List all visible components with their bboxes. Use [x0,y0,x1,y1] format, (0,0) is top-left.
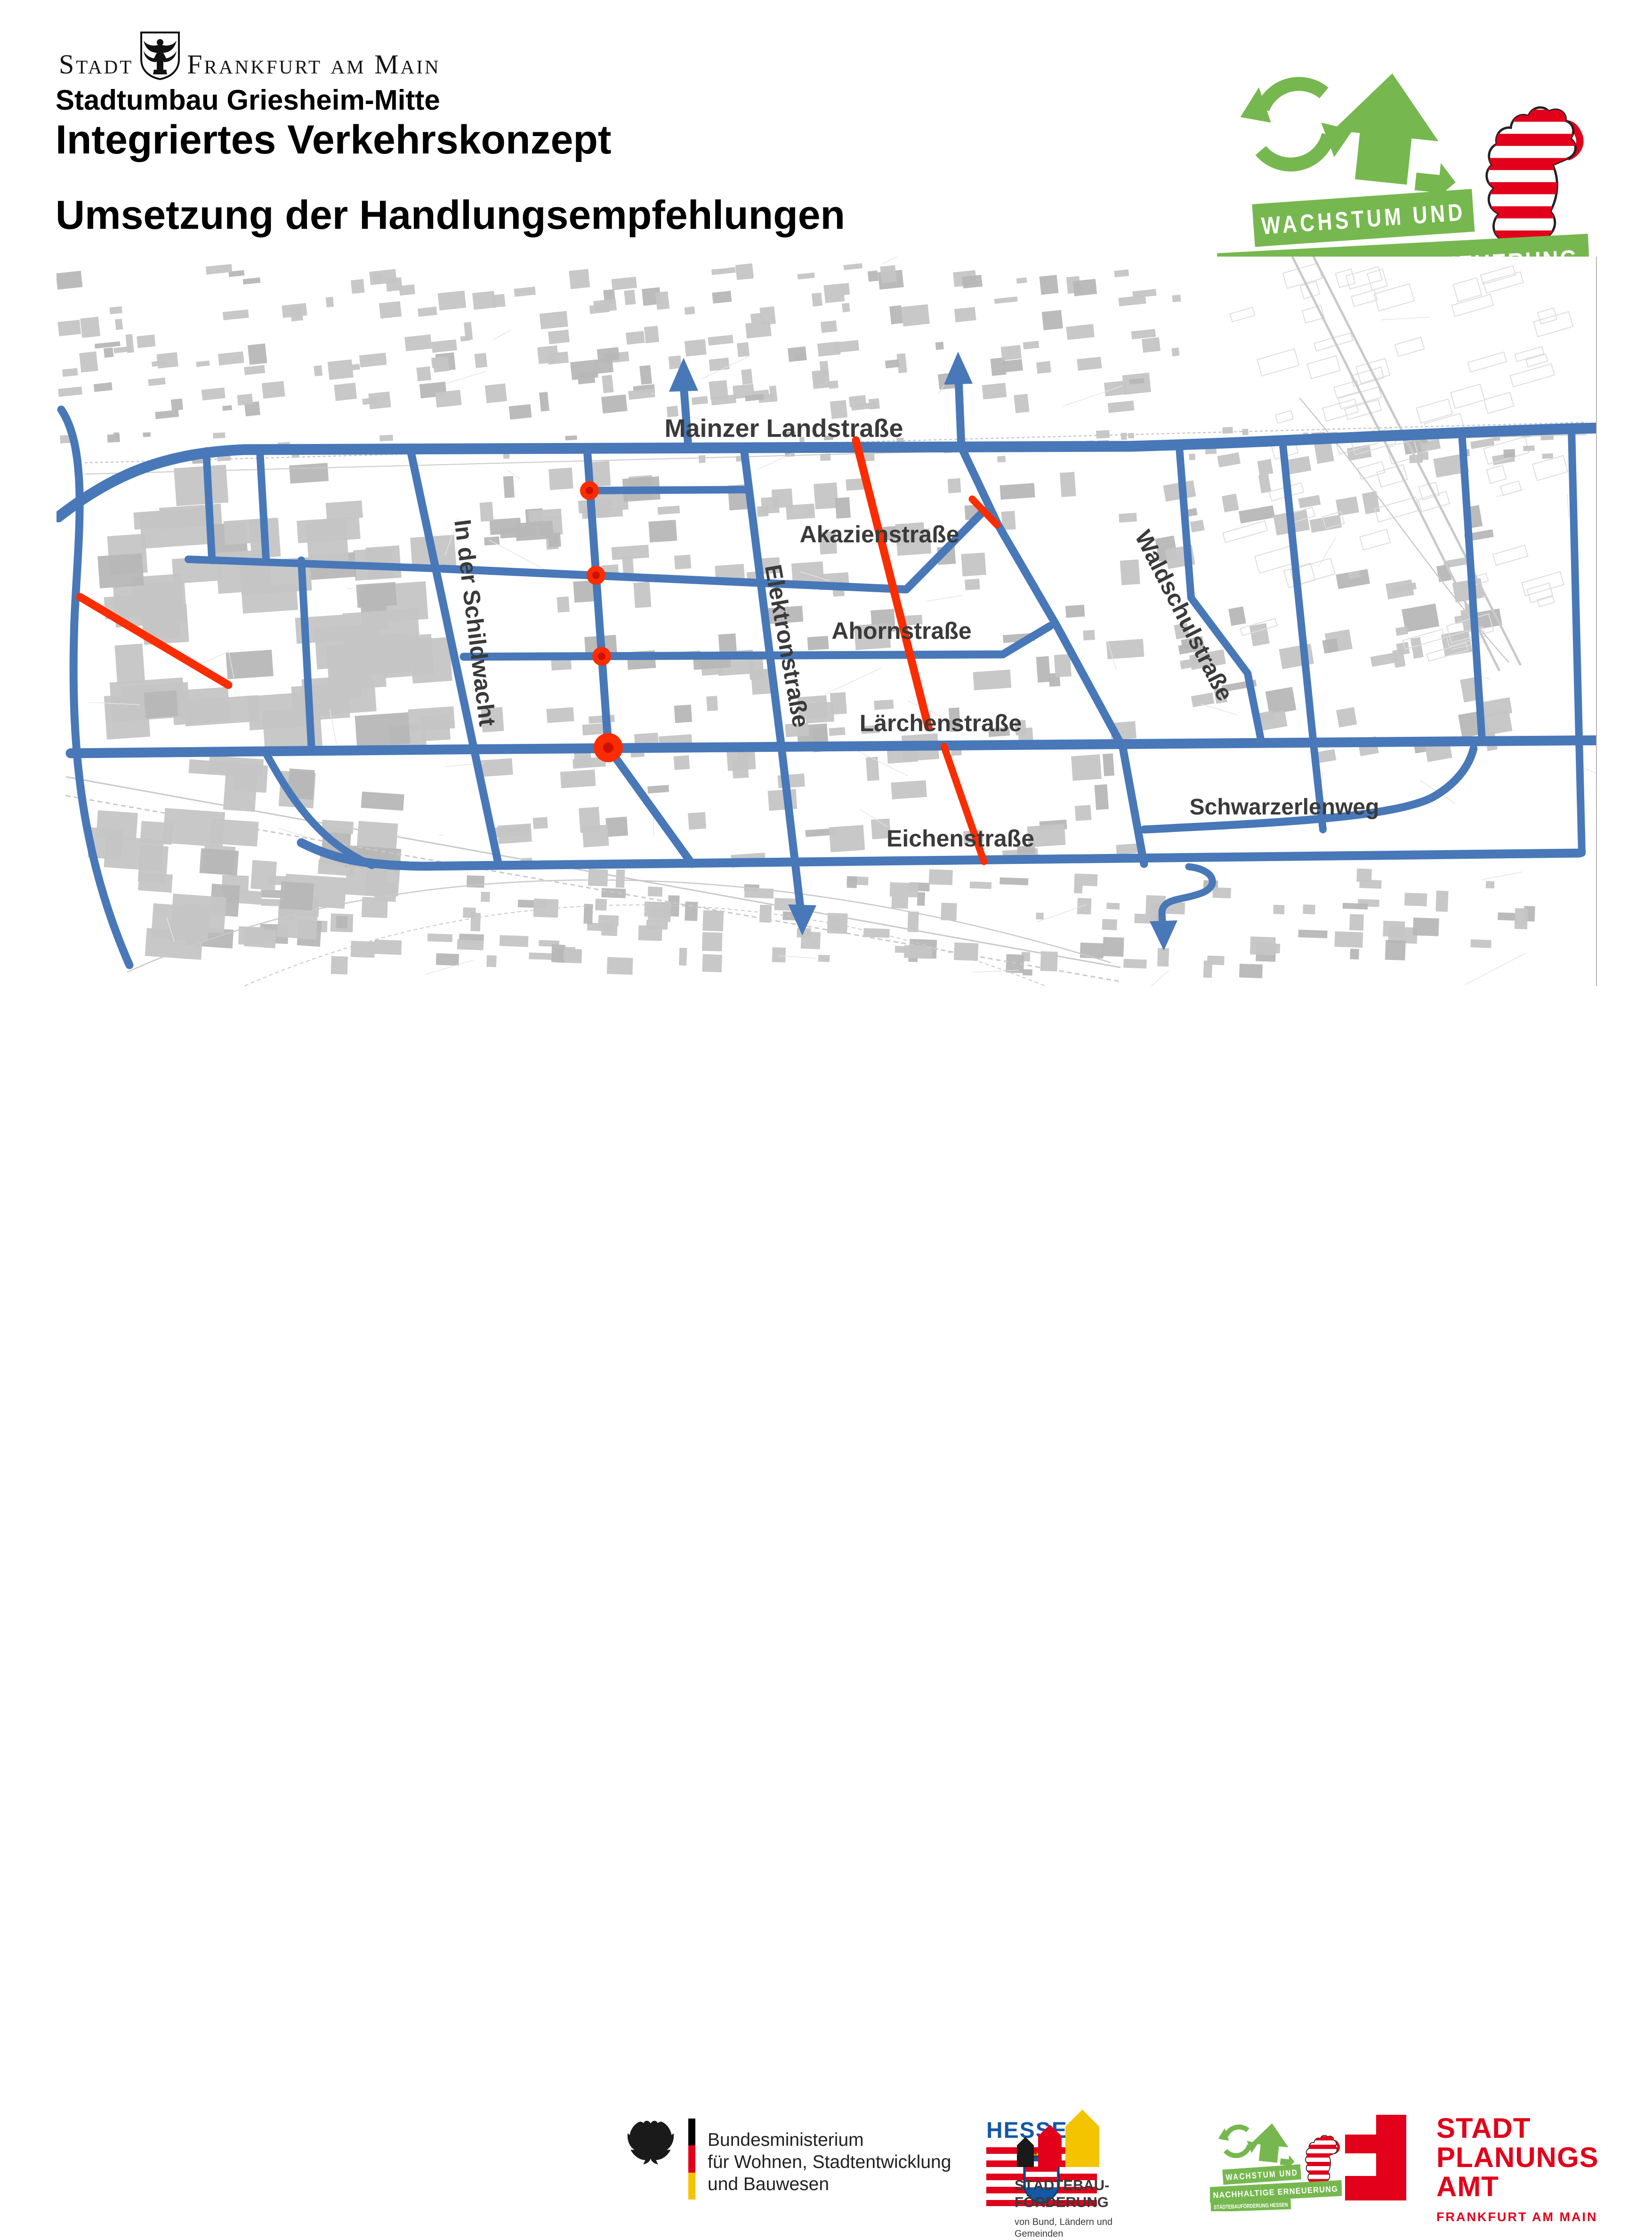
building-footprint [1118,295,1146,306]
building-footprint [533,898,559,918]
building-footprint [1077,357,1102,371]
building-footprint [598,915,619,926]
building-footprint [709,358,730,371]
building-footprint [1395,626,1408,636]
building-footprint [685,339,707,356]
building-footprint [842,303,850,312]
building-footprint [1451,384,1484,408]
building-footprint [557,596,570,612]
building-footprint [282,303,307,318]
building-footprint [114,644,145,685]
building-footprint [431,356,445,368]
stb-sub2: Gemeinden [1015,2228,1137,2240]
building-footprint [737,342,749,357]
building-footprint [1065,604,1085,618]
building-footprint [1417,399,1453,423]
building-footprint [935,342,944,350]
building-footprint [155,410,179,419]
building-footprint [438,290,467,310]
building-footprint [1128,433,1134,438]
building-footprint [184,695,259,726]
building-footprint [248,343,267,365]
building-footprint [224,518,263,545]
building-footprint [1356,358,1390,383]
building-footprint [597,508,623,518]
building-footprint [999,878,1028,886]
building-footprint [1527,583,1553,603]
building-footprint [372,273,383,284]
building-footprint [1171,347,1179,356]
building-footprint [1157,948,1169,967]
street-label: Akazienstraße [799,521,959,548]
building-footprint [1403,629,1445,649]
building-footprint [812,293,822,307]
building-footprint [540,311,568,329]
building-footprint [1142,337,1160,353]
building-footprint [514,287,536,297]
building-footprint [702,932,723,951]
building-footprint [1370,653,1398,667]
building-footprint [243,277,261,284]
building-footprint [1121,433,1127,440]
building-footprint [582,825,609,847]
building-footprint [200,848,239,876]
building-footprint [1273,905,1284,914]
building-footprint [647,785,669,793]
building-footprint [1515,908,1528,929]
building-footprint [56,271,82,290]
building-footprint [702,910,724,931]
stb-sub1: von Bund, Ländern und [1015,2216,1137,2228]
building-footprint [1487,466,1507,483]
building-footprint [1036,361,1051,374]
building-footprint [829,915,840,932]
building-footprint [709,380,728,400]
building-footprint [1336,707,1357,727]
building-footprint [1114,269,1129,277]
building-footprint [1075,805,1092,821]
street-label: Eichenstraße [886,825,1034,852]
building-footprint [868,270,878,282]
building-footprint [624,290,636,305]
parcel-line [1481,677,1491,679]
building-footprint [143,432,151,437]
building-footprint [431,339,457,353]
building-footprint [1335,931,1363,948]
building-footprint [1213,887,1231,898]
building-footprint [1498,912,1516,921]
bmwsb-line2: für Wohnen, Stadtentwicklung [708,2151,951,2173]
building-footprint [626,331,645,345]
building-footprint [829,825,865,852]
building-footprint [1096,430,1110,438]
building-footprint [138,872,173,893]
building-footprint [107,434,120,443]
parcel-line [926,596,962,602]
building-footprint [1103,753,1114,776]
city-logo: Stadt Frankfurt am Main [59,26,483,80]
building-footprint [994,297,1018,304]
parcel-line [1465,953,1526,985]
building-footprint [1060,472,1076,497]
building-footprint [250,860,277,890]
building-footprint [1230,307,1255,322]
building-footprint [218,351,244,365]
page-title: Integriertes Verkehrskonzept [56,117,612,163]
parcel-line [825,668,881,694]
building-footprint [891,780,927,799]
building-footprint [110,306,122,314]
building-footprint [823,283,845,303]
building-footprint [206,264,232,275]
building-footprint [115,319,123,330]
building-footprint [326,297,334,307]
building-footprint [1217,452,1241,467]
building-footprint [1314,333,1353,351]
building-footprint [648,886,662,896]
building-footprint [137,334,155,348]
building-footprint [436,953,459,966]
street-label: Lärchenstraße [860,710,1022,736]
building-footprint [1102,919,1117,930]
building-footprint [929,870,953,886]
building-footprint [280,881,314,911]
building-footprint [1000,483,1035,500]
street-label: Mainzer Landstraße [664,414,903,443]
parcel-line [493,330,511,339]
building-footprint [962,275,983,289]
building-footprint [1538,596,1555,607]
street-label: Schwarzerlenweg [1190,795,1379,820]
building-footprint [706,696,718,711]
building-footprint [1228,606,1246,626]
building-footprint [601,925,617,936]
building-footprint [1016,277,1027,283]
street-label: Ahornstraße [831,618,971,644]
building-footprint [1385,940,1406,960]
building-footprint [1322,638,1338,654]
building-footprint [539,392,549,411]
building-footprint [1470,438,1495,449]
parcel-line [347,588,355,589]
building-footprint [1307,356,1340,379]
building-footprint [564,949,581,961]
building-footprint [1257,459,1273,476]
building-footprint [144,690,178,718]
building-footprint [374,940,402,955]
parcel-line [439,835,444,835]
building-footprint [786,503,815,520]
building-footprint [970,881,991,889]
street-label: In der Schildwacht [449,518,500,728]
building-footprint [1542,453,1553,459]
building-footprint [1346,444,1371,461]
building-footprint [1222,494,1239,513]
building-footprint [97,553,144,588]
building-footprint [1239,505,1275,524]
building-footprint [1343,903,1368,910]
building-footprint [644,902,670,918]
building-footprint [1351,290,1377,306]
building-footprint [602,375,613,393]
building-footprint [485,383,507,403]
parcel-line [883,257,927,264]
building-footprint [547,707,574,723]
building-footprint [95,341,121,349]
building-footprint [1080,943,1104,959]
bmwsb-logo: Bundesministerium für Wohnen, Stadtentwi… [626,2119,951,2200]
building-footprint [674,705,693,723]
building-footprint [1123,959,1147,969]
building-footprint [869,398,880,410]
building-footprint [500,935,528,947]
building-footprint [345,866,387,897]
building-footprint [1001,345,1022,361]
building-footprint [1189,453,1195,460]
building-footprint [772,947,786,962]
building-footprint [699,455,706,463]
building-footprint [1095,784,1109,810]
parcel-line [1496,489,1525,497]
building-footprint [658,506,680,515]
building-footprint [1275,411,1293,423]
building-footprint [750,313,762,323]
building-footprint [1350,949,1359,959]
building-footprint [1261,943,1280,953]
building-footprint [829,727,846,736]
building-footprint [1298,495,1321,508]
building-footprint [1239,964,1263,978]
building-footprint [674,555,691,569]
building-footprint [1532,456,1568,481]
page-subtitle: Stadtumbau Griesheim-Mitte [56,84,440,116]
building-footprint [711,267,736,275]
spa-line2: PLANUNGS [1436,2143,1599,2172]
bmwsb-line3: und Bauwesen [708,2173,951,2195]
building-footprint [237,394,253,405]
building-footprint [1106,902,1120,909]
building-footprint [379,301,402,319]
building-footprint [745,321,772,338]
building-footprint [1077,898,1092,914]
building-footprint [156,352,178,369]
bmwsb-line1: Bundesministerium [708,2129,951,2151]
building-footprint [1083,630,1095,641]
building-footprint [481,892,490,902]
building-footprint [847,876,857,888]
building-footprint [1172,295,1181,302]
building-footprint [551,944,565,962]
building-footprint [1404,893,1427,906]
building-footprint [605,817,628,837]
building-footprint [880,265,897,283]
building-footprint [1298,930,1328,938]
building-footprint [336,916,347,929]
building-footprint [492,294,506,307]
building-footprint [941,902,957,920]
spa-mark-icon [1344,2114,1415,2203]
building-footprint [1349,914,1364,931]
parcel-line [1482,872,1522,879]
building-footprint [818,955,830,962]
building-footprint [639,365,652,385]
building-footprint [1014,394,1029,413]
building-footprint [331,956,348,975]
building-footprint [359,353,387,367]
building-footprint [655,291,669,310]
building-footprint [1042,310,1063,330]
building-footprint [674,755,690,770]
building-footprint [1073,279,1097,296]
building-footprint [901,304,930,326]
building-footprint [1386,580,1414,600]
building-footprint [62,368,78,377]
building-footprint [601,395,628,414]
building-footprint [435,390,461,408]
building-footprint [1023,341,1040,349]
building-footprint [569,269,590,289]
stadtplanungsamt-logo: STADT PLANUNGS AMT FRANKFURT AM MAIN [1344,2114,1599,2224]
building-footprint [213,432,225,438]
building-footprint [712,291,732,304]
building-footprint [289,463,329,483]
building-footprint [480,502,494,522]
building-footprint [1120,559,1140,585]
building-footprint [470,913,481,932]
building-footprint [583,904,593,924]
building-footprint [548,330,570,344]
building-footprint [679,948,687,966]
building-footprint [475,353,487,368]
building-footprint [628,388,655,400]
building-footprint [948,478,961,493]
building-footprint [616,870,625,888]
building-footprint [1258,474,1272,493]
city-logo-stadt: Stadt [59,51,133,80]
building-footprint [1074,873,1098,886]
building-footprint [379,435,393,441]
building-footprint [140,821,173,845]
building-footprint [180,903,210,941]
building-footprint [595,358,613,374]
building-footprint [1119,513,1137,523]
building-footprint [427,934,453,942]
parcel-line [1318,537,1336,567]
building-footprint [480,758,513,777]
parcel-line [1138,970,1168,986]
building-footprint [1036,913,1044,920]
building-footprint [917,892,925,906]
building-footprint [593,299,617,313]
spa-sub: FRANKFURT AM MAIN [1436,2210,1599,2224]
building-footprint [94,382,113,392]
building-footprint [1470,939,1491,948]
building-footprint [1054,654,1072,677]
building-footprint [612,277,637,290]
building-footprint [1523,445,1535,451]
building-footprint [334,383,357,401]
building-footprint [104,347,113,358]
building-footprint [1360,529,1390,550]
building-footprint [595,899,607,911]
building-footprint [297,516,361,543]
building-footprint [633,582,651,608]
building-footprint [798,273,815,280]
three-houses-icon [1015,2107,1102,2168]
building-footprint [692,396,708,405]
building-footprint [812,370,830,389]
building-footprint [1190,520,1205,532]
building-footprint [1435,891,1448,912]
building-footprint [1131,329,1156,339]
north-arrow-icon [944,352,973,385]
building-footprint [1303,904,1315,914]
building-footprint [356,582,397,608]
parcel-line [1567,494,1569,517]
building-footprint [1356,869,1372,882]
building-footprint [196,361,210,367]
building-footprint [233,764,268,793]
building-footprint [573,580,594,603]
building-footprint [1071,754,1102,781]
measure-segments [80,440,997,862]
building-footprint [1383,921,1405,937]
building-footprint [1257,349,1299,376]
building-footprint [262,381,285,399]
bundesadler-icon [626,2119,675,2171]
building-footprint [757,506,768,516]
building-footprint [1036,656,1051,683]
flag-bar-icon [688,2119,695,2200]
building-footprint [1367,269,1387,290]
building-footprint [844,263,862,270]
building-footprint [644,326,659,343]
building-footprint [814,483,838,509]
building-footprint [841,283,850,295]
building-footprint [457,939,484,951]
building-footprint [708,335,733,346]
building-footprint [244,365,265,375]
building-footprint [954,307,976,322]
building-footprint [889,305,903,324]
building-footprint [418,306,437,317]
building-footprint [885,359,900,368]
building-footprint [688,812,706,830]
building-footprint [829,380,838,389]
building-footprint [1413,918,1439,936]
building-footprint [849,395,866,407]
building-footprint [548,467,573,490]
building-footprint [533,817,548,829]
parcel-line [489,540,545,570]
building-footprint [807,636,829,651]
building-footprint [355,712,411,747]
building-footprint [244,928,276,948]
building-footprint [404,334,432,351]
building-footprint [80,317,100,338]
building-footprint [261,899,281,906]
building-footprint [1336,496,1359,516]
building-footprint [416,366,431,381]
building-footprint [588,715,615,724]
building-footprint [1207,956,1225,966]
building-footprint [863,928,890,938]
building-footprint [1317,749,1336,763]
building-footprint [718,633,737,654]
building-footprint [577,371,595,385]
building-footprint [241,583,298,613]
spa-line1: STADT [1436,2114,1599,2143]
